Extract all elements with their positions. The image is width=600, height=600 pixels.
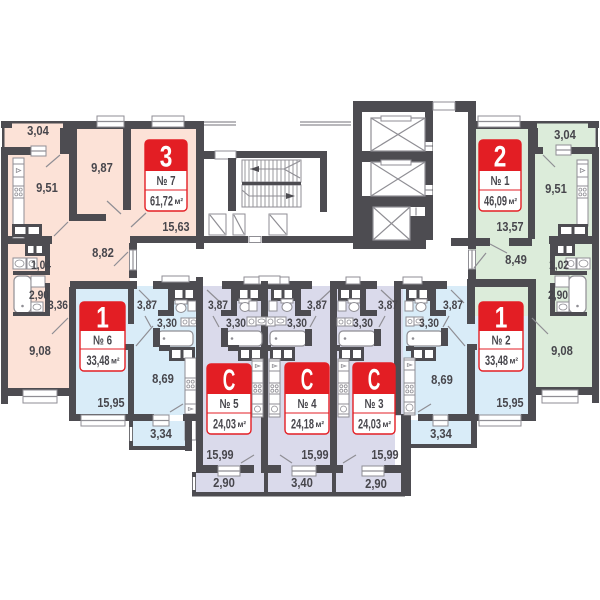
svg-text:2,90: 2,90 <box>365 477 387 491</box>
svg-text:15,99: 15,99 <box>371 448 398 462</box>
svg-text:2: 2 <box>494 141 507 174</box>
svg-text:С: С <box>301 364 314 397</box>
svg-text:3,87: 3,87 <box>378 300 398 312</box>
svg-text:9,08: 9,08 <box>29 344 51 358</box>
svg-text:46,09: 46,09 <box>484 194 507 209</box>
svg-text:м²: м² <box>383 420 392 429</box>
svg-text:3,40: 3,40 <box>291 476 313 490</box>
svg-text:3,87: 3,87 <box>208 300 228 312</box>
svg-text:1,02: 1,02 <box>549 260 569 272</box>
svg-text:№ 5: № 5 <box>220 396 239 411</box>
svg-text:8,82: 8,82 <box>92 246 114 260</box>
svg-text:№ 7: № 7 <box>157 173 176 188</box>
svg-text:№ 4: № 4 <box>298 396 318 411</box>
svg-text:м²: м² <box>509 197 518 206</box>
svg-text:3,34: 3,34 <box>150 427 172 441</box>
svg-text:3,87: 3,87 <box>307 300 327 312</box>
svg-text:м²: м² <box>238 420 247 429</box>
svg-text:1: 1 <box>96 302 109 335</box>
svg-text:15,99: 15,99 <box>301 448 328 462</box>
svg-text:3,30: 3,30 <box>157 318 177 330</box>
svg-text:3,04: 3,04 <box>27 124 49 138</box>
svg-text:24,03: 24,03 <box>358 417 381 432</box>
svg-text:24,18: 24,18 <box>291 417 314 432</box>
svg-text:24,03: 24,03 <box>213 417 236 432</box>
svg-text:9,08: 9,08 <box>551 344 573 358</box>
svg-text:м²: м² <box>316 420 325 429</box>
svg-text:3: 3 <box>160 141 173 174</box>
svg-text:С: С <box>368 364 381 397</box>
svg-text:33,48: 33,48 <box>87 353 110 368</box>
svg-text:3,30: 3,30 <box>226 318 246 330</box>
svg-text:3,30: 3,30 <box>353 318 373 330</box>
svg-text:3,34: 3,34 <box>430 427 452 441</box>
svg-text:15,99: 15,99 <box>206 448 233 462</box>
svg-text:№ 1: № 1 <box>491 173 510 188</box>
svg-text:3,30: 3,30 <box>287 318 307 330</box>
svg-text:м²: м² <box>175 197 184 206</box>
svg-text:15,95: 15,95 <box>97 396 124 410</box>
svg-text:3,36: 3,36 <box>48 300 68 312</box>
svg-text:15,63: 15,63 <box>162 220 189 234</box>
svg-text:3,87: 3,87 <box>137 300 157 312</box>
svg-text:9,51: 9,51 <box>545 182 567 196</box>
svg-text:№ 6: № 6 <box>93 333 112 348</box>
svg-text:м²: м² <box>510 357 519 366</box>
svg-text:8,49: 8,49 <box>505 253 527 267</box>
svg-text:1,04: 1,04 <box>31 260 52 272</box>
svg-text:№ 2: № 2 <box>492 333 511 348</box>
svg-text:м²: м² <box>111 357 120 366</box>
svg-text:3,30: 3,30 <box>419 318 439 330</box>
svg-text:9,87: 9,87 <box>91 161 113 175</box>
svg-text:8,69: 8,69 <box>152 372 174 386</box>
svg-text:8,69: 8,69 <box>431 373 453 387</box>
svg-text:С: С <box>223 364 236 397</box>
svg-text:61,72: 61,72 <box>150 194 173 209</box>
svg-text:9,51: 9,51 <box>36 181 58 195</box>
svg-text:15,95: 15,95 <box>496 396 523 410</box>
svg-text:3,04: 3,04 <box>554 128 576 142</box>
svg-text:33,48: 33,48 <box>485 353 508 368</box>
svg-text:2,90: 2,90 <box>548 290 568 302</box>
svg-text:1: 1 <box>495 302 508 335</box>
svg-text:2,90: 2,90 <box>213 476 235 490</box>
svg-text:3,87: 3,87 <box>443 300 463 312</box>
svg-text:№ 3: № 3 <box>365 396 384 411</box>
svg-text:2,90: 2,90 <box>29 290 49 302</box>
svg-text:13,57: 13,57 <box>496 220 523 234</box>
